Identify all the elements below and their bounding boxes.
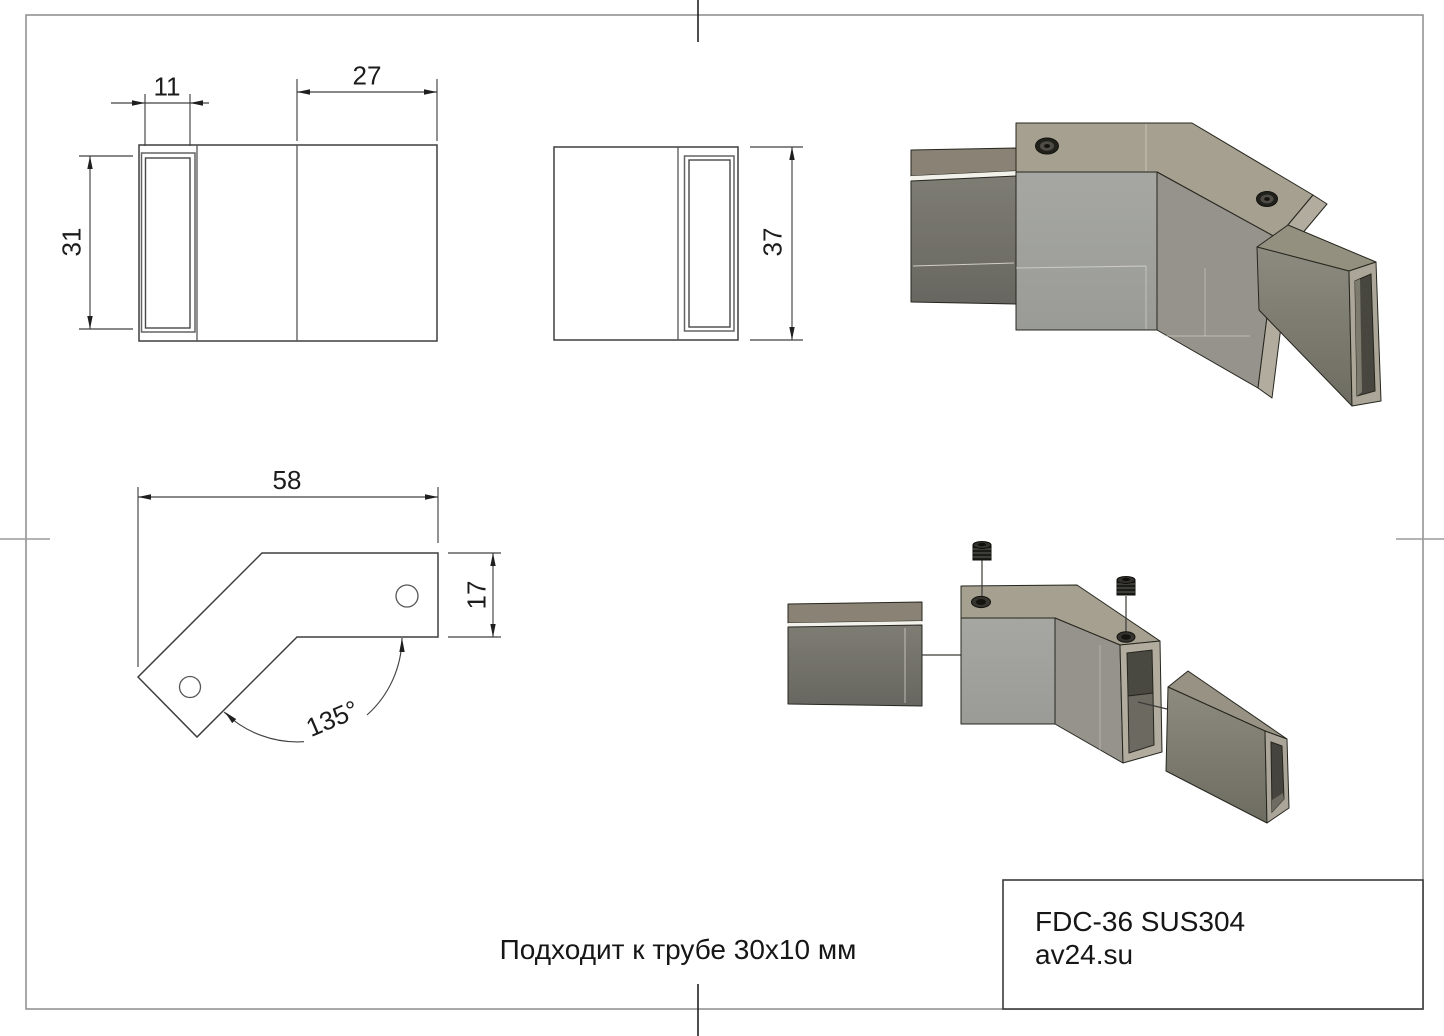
dim-plan-arm-width-label: 17 — [462, 581, 492, 610]
socket-interior-lower — [1128, 693, 1154, 753]
dim-front-tube-height-label: 31 — [57, 228, 87, 257]
exploded-screw-hole-1-center — [976, 599, 986, 605]
title-block-model: FDC-36 SUS304 — [1035, 906, 1245, 937]
connector-front-face — [1016, 172, 1157, 330]
left-tube-front-face — [911, 176, 1016, 304]
title-block: FDC-36 SUS304 av24.su — [1003, 880, 1423, 1009]
dim-side-height-label: 37 — [758, 228, 788, 257]
exploded-screw-hole-2-center — [1121, 634, 1131, 640]
set-screw-hole-1 — [1036, 138, 1059, 154]
exploded-left-tube-top — [788, 602, 922, 623]
exploded-connector-front — [961, 618, 1055, 724]
dim-plan-length-label: 58 — [273, 465, 302, 495]
set-screw-hole-2 — [1257, 192, 1278, 207]
socket-interior-upper — [1127, 650, 1153, 696]
exploded-left-tube-front — [788, 625, 922, 706]
drawing-sheet: 11 27 31 37 — [0, 0, 1444, 1036]
technical-drawing-canvas: 11 27 31 37 — [0, 0, 1444, 1036]
dim-front-tab-width-label: 11 — [154, 72, 181, 102]
title-block-website: av24.su — [1035, 939, 1133, 970]
fit-note: Подходит к трубе 30x10 мм — [500, 934, 857, 965]
dim-front-body-width-label: 27 — [353, 61, 382, 91]
